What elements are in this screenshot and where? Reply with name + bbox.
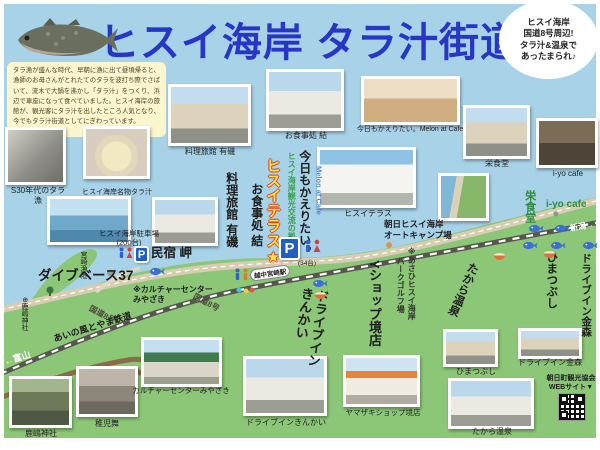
map-label-melon-at-cafe: Melon at Cafe	[314, 166, 323, 215]
caption-takara: たから温泉	[466, 427, 518, 437]
caption-sakae: 栄食堂	[475, 159, 519, 169]
ramen-bowl-icon	[543, 249, 556, 260]
caption-s30: S30年代のタラ漁	[8, 186, 68, 205]
fish-icon	[522, 240, 538, 251]
caption-kinkai: ドライブインきんかい	[246, 418, 326, 428]
photo-himatsubushi	[443, 329, 498, 367]
caption-melon: 今日もかえりたい。Melon at Cafe	[350, 126, 470, 134]
caption-chigomai: 稚児舞	[84, 419, 130, 429]
map-label-minshuku-misaki: 民宿 岬	[151, 246, 192, 260]
fish-icon	[528, 223, 544, 234]
station-people-icons	[233, 268, 251, 284]
photo-sakae-shokudo	[463, 105, 530, 159]
photo-melon-at-cafe	[361, 76, 460, 125]
parking-icon-misaki: P	[134, 246, 149, 263]
photo-s30-tara-fishing	[5, 127, 66, 185]
caption-culture: カルチャーセンターみやざき	[132, 386, 230, 395]
autocamp-dot	[386, 242, 392, 248]
footer-org: 朝日町観光協会 WEBサイト▼	[543, 374, 599, 393]
iyo-cafe-dot	[554, 212, 559, 217]
map-label-park-golf-2: パークゴルフ場	[396, 257, 405, 313]
caption-himatsubushi: ひまつぶし	[453, 367, 499, 377]
map-label-kashima-shrine: ⊕鹿嶋神社	[20, 297, 28, 331]
qr-code	[558, 393, 586, 421]
photo-ryokan-ariso	[168, 84, 251, 146]
fish-icon	[554, 223, 570, 234]
photo-minshuku-misaki	[152, 197, 218, 246]
fish-icon	[149, 266, 165, 277]
caption-kanamori: ドライブイン金森	[516, 358, 584, 368]
page-title: ヒスイ海岸 タラ汁街道	[92, 10, 528, 68]
station-dot-cyan	[237, 288, 242, 293]
map-label-oshokuji-yui: お食事処 結	[249, 183, 263, 246]
fish-icon	[312, 278, 328, 289]
ramen-bowl-icon	[493, 251, 506, 262]
map-label-terrace-tagline: ヒスイ海岸観光交流の拠点	[287, 152, 296, 248]
header-badge: ヒスイ海岸 国道8号周辺! タラ汁&温泉で あったまられ♪	[501, 2, 596, 77]
footer-web-label: WEBサイト▼	[549, 384, 593, 391]
photo-drivein-kanamori	[518, 328, 582, 359]
caption-ariso: 料理旅館 有磯	[170, 147, 250, 157]
caption-tarajiru: ヒスイ海岸名物タラ汁	[78, 189, 156, 197]
photo-kashima-shrine	[9, 376, 72, 428]
photo-iyo-cafe	[536, 118, 598, 168]
map-label-hisui-parking: ヒスイ海岸駐車場 (200台)	[97, 230, 161, 247]
map-label-miyazaki-port: 宮崎漁港	[79, 251, 87, 279]
station-dot-red	[250, 288, 255, 293]
cod-fish-illustration	[8, 14, 120, 62]
photo-culture-center	[141, 337, 222, 387]
map-label-sakae-shokudo: 栄食堂	[523, 190, 536, 223]
caption-kashima: 鹿嶋神社	[15, 429, 67, 439]
map-label-ryokan-ariso: 料理旅館 有磯	[224, 172, 238, 247]
caption-yui: お食事処 結	[275, 131, 337, 141]
map-label-iyo-cafe: i-yo cafe	[546, 199, 587, 211]
photo-chigomai	[76, 366, 138, 417]
photo-takara-onsen	[448, 378, 534, 429]
caption-terrace: ヒスイテラス	[338, 209, 398, 219]
restroom-icon-terrace	[303, 239, 322, 256]
station-dot-yellow	[244, 289, 249, 294]
map-label-y-shop: Yショップ境店	[366, 260, 381, 347]
photo-oshokujidokoro-yui	[266, 69, 344, 131]
caption-yamazaki: ヤマザキショップ境店	[343, 408, 423, 417]
map-label-terrace-parking-count: (34台)	[298, 260, 316, 267]
map-label-autocamp: 朝日ヒスイ海岸 オートキャンプ場	[384, 219, 452, 242]
footer-org-name: 朝日町観光協会	[547, 375, 596, 382]
parking-icon-terrace: P	[279, 237, 300, 260]
caption-iyo: i-yo cafe	[545, 169, 591, 179]
map-label-park-golf-1: ※あさひヒスイ海岸	[407, 247, 416, 320]
ramen-bowl-icon	[314, 290, 327, 301]
fish-icon	[582, 240, 598, 251]
photo-tarajiru	[83, 126, 150, 179]
restroom-icon-misaki	[117, 247, 134, 262]
map-label-drivein-kanamori: ドライブイン金森	[580, 253, 592, 337]
flyer-page: ヒスイ海岸 タラ汁街道 ヒスイ海岸 国道8号周辺! タラ汁&温泉で あったまられ…	[0, 0, 600, 450]
photo-yamazaki-shop	[343, 355, 420, 407]
photo-autocamp-aerial	[438, 173, 489, 221]
photo-hisui-terrace	[317, 147, 416, 208]
